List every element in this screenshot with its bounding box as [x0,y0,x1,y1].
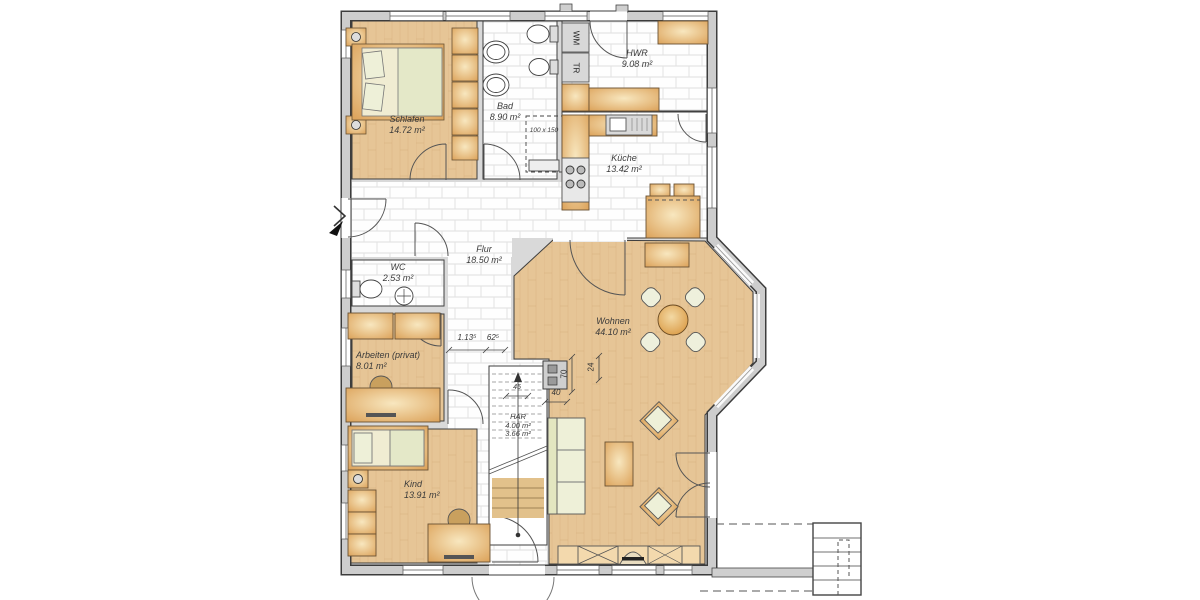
room-area: 13.42 m² [606,164,642,175]
terrace [700,523,861,595]
dim-stair-w: 45 [513,383,521,394]
terrace-door-gap [708,452,717,518]
room-area: 8.01 m² [356,361,420,372]
room-name: Bad [490,101,521,112]
room-label-schlafen: Schlafen 14.72 m² [389,114,425,135]
room-label-flur: Flur 18.50 m² [466,244,502,265]
room-name: Wohnen [595,316,631,327]
room-name: Arbeiten (privat) [356,350,420,361]
room-name: Flur [466,244,502,255]
tv-sideboard [558,546,700,564]
stove [562,158,589,202]
room-label-arbeiten: Arbeiten (privat) 8.01 m² [356,350,420,371]
hwr-exterior-door-gap [590,12,627,21]
room-label-kueche: Küche 13.42 m² [606,153,642,174]
room-label-har: HAR 4.00 m² 3.66 m² [505,413,530,439]
dryer-label: TR [572,63,581,74]
shower-size-label: 100 x 150 [530,127,559,134]
coffee-table [605,442,633,486]
room-area: 14.72 m² [389,125,425,136]
room-area: 9.08 m² [622,59,653,70]
room-label-kind: Kind 13.91 m² [404,479,440,500]
floorplan-canvas: Schlafen 14.72 m² Bad 8.90 m² HWR 9.08 m… [0,0,1200,600]
room-name: Kind [404,479,440,490]
room-area: 44.10 m² [595,327,631,338]
floorplan-drawing [0,0,1200,600]
room-area: 2.53 m² [383,273,414,284]
vestibule-door-gap [489,566,545,575]
dim-chimney-d: 40 [552,388,561,399]
room-label-hwr: HWR 9.08 m² [622,48,653,69]
dim-chimney-w: 24 [587,363,596,372]
room-name: Küche [606,153,642,164]
room-area-2: 3.66 m² [505,430,530,439]
dim-hall-b: 62⁵ [487,333,499,344]
room-label-wohnen: Wohnen 44.10 m² [595,316,631,337]
dim-chimney-h: 70 [560,370,569,379]
room-name: WC [383,262,414,273]
dim-hall-a: 1.13⁵ [458,333,477,344]
exterior-stairs [813,523,861,595]
room-area: 13.91 m² [404,490,440,501]
washing-machine-label: WM [572,31,581,45]
sofa [548,418,585,514]
wardrobe [452,28,478,160]
room-label-bad: Bad 8.90 m² [490,101,521,122]
room-area: 18.50 m² [466,255,502,266]
room-label-wc: WC 2.53 m² [383,262,414,283]
room-name: Schlafen [389,114,425,125]
room-area: 8.90 m² [490,112,521,123]
vestibule-exterior-swing [472,577,554,600]
room-name: HWR [622,48,653,59]
